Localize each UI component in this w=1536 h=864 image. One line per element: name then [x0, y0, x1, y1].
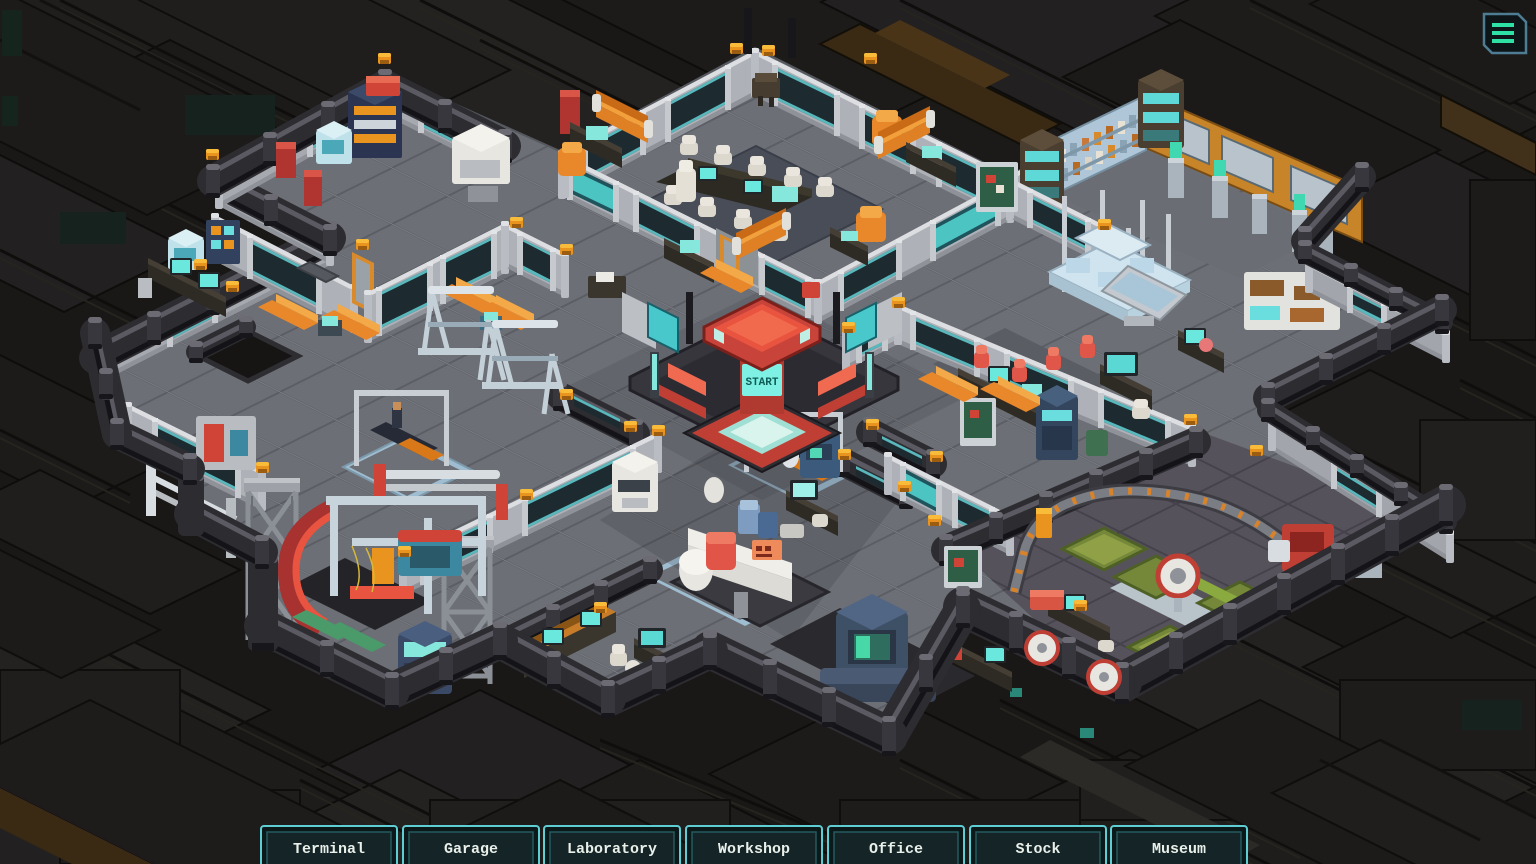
svg-text:START: START	[745, 377, 778, 389]
svg-text:Office: Office	[869, 841, 923, 858]
svg-text:Museum: Museum	[1152, 841, 1206, 858]
svg-text:Stock: Stock	[1015, 841, 1060, 858]
svg-text:Workshop: Workshop	[718, 841, 790, 858]
svg-text:Laboratory: Laboratory	[567, 841, 657, 858]
svg-text:Terminal: Terminal	[293, 841, 365, 858]
svg-text:Garage: Garage	[444, 841, 498, 858]
